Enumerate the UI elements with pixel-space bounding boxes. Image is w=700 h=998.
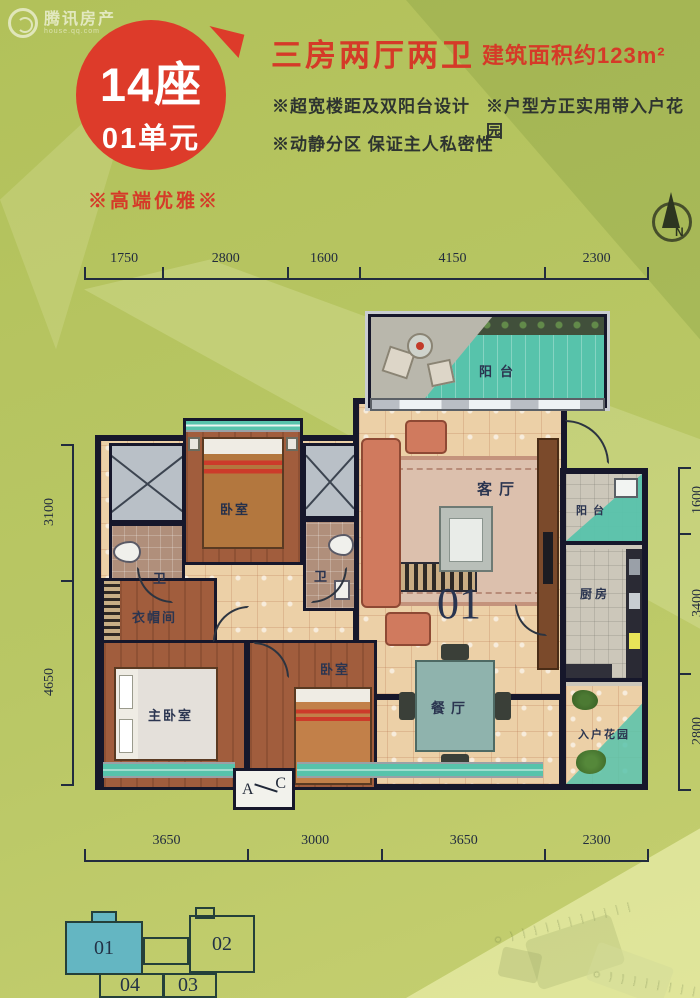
ghost-trees <box>491 900 639 946</box>
room-label-balcony-right: 阳台 <box>576 502 610 518</box>
bed-icon <box>202 437 284 549</box>
table-top <box>449 518 483 562</box>
room-label-master-bedroom: 主卧室 <box>148 705 193 724</box>
table-decor-icon <box>416 342 424 350</box>
tv-icon <box>543 532 553 584</box>
dimension-value: 2300 <box>545 251 648 267</box>
dimension-value: 1750 <box>85 251 163 267</box>
chair-icon <box>399 692 415 720</box>
dimension-value: 3000 <box>248 833 382 849</box>
section-mark-start: A <box>242 781 254 799</box>
window-band <box>370 398 605 411</box>
tagline: ※高端优雅※ <box>88 186 220 213</box>
room-bedroom-top: 卧室 <box>183 418 303 565</box>
plan-right-wing: 阳台 厨房 入户花园 <box>560 468 648 790</box>
toilet-icon <box>113 541 141 563</box>
window-band <box>297 762 543 778</box>
compass-icon: N <box>648 192 700 246</box>
room-kitchen: 厨房 <box>566 549 642 682</box>
window-band <box>186 421 300 432</box>
room-label-bedroom-top: 卧室 <box>220 499 250 518</box>
room-label-living: 客厅 <box>477 478 521 499</box>
dimension-segment: 3100 <box>46 445 74 581</box>
dimension-segment: 1600 <box>678 468 700 534</box>
dimension-value: 3400 <box>690 573 700 633</box>
appliance-icon <box>629 593 640 609</box>
nightstand-icon <box>188 437 200 451</box>
compass-arrow <box>662 192 680 228</box>
keyplan-unit1-label: 01 <box>67 937 141 960</box>
block-badge: 14座 01单元 <box>76 20 226 170</box>
room-label-kitchen: 厨房 <box>580 585 610 602</box>
sofa-icon <box>361 438 401 608</box>
compass-north-label: N <box>675 225 684 239</box>
plan-unit-number: 01 <box>437 578 481 629</box>
pillow-icon <box>119 675 133 709</box>
dimension-segment: 4150 <box>360 250 545 280</box>
area-text: 建筑面积约123m² <box>482 38 666 70</box>
dimension-segment: 1600 <box>288 250 359 280</box>
ghost-trees <box>590 969 700 998</box>
site-plan-ghost <box>470 890 700 998</box>
appliance-icon <box>629 559 640 575</box>
dimension-value: 1600 <box>288 251 359 267</box>
washer-icon <box>614 478 638 498</box>
toilet-icon <box>328 534 354 556</box>
dimension-segment: 2300 <box>545 832 648 862</box>
watermark-brand: 腾讯房产 <box>44 12 116 28</box>
dimension-segment: 2800 <box>678 674 700 790</box>
armchair-icon <box>405 420 447 454</box>
chair-icon <box>495 692 511 720</box>
room-label-entry-garden: 入户花园 <box>578 726 630 742</box>
watermark: 腾讯房产 house.qq.com <box>8 8 116 38</box>
dimension-column-right: 1600 3400 2800 <box>678 468 700 790</box>
block-number: 14座 <box>76 46 226 115</box>
armchair-icon <box>385 612 431 646</box>
dimension-value: 2300 <box>545 833 648 849</box>
dimension-value: 1600 <box>690 470 700 530</box>
room-entry-garden: 入户花园 <box>566 686 642 784</box>
dimension-segment: 3650 <box>382 832 545 862</box>
pillow-icon <box>119 719 133 753</box>
appliance-icon <box>629 633 640 649</box>
section-mark-line <box>254 783 277 792</box>
dimension-segment: 2800 <box>163 250 288 280</box>
room-label-dining: 餐厅 <box>431 698 471 718</box>
dimension-value: 4650 <box>42 652 58 712</box>
floor-plan: 阳台 阳台 厨房 <box>85 310 650 810</box>
keyplan-corridor <box>143 937 189 965</box>
dimension-value: 2800 <box>163 251 288 267</box>
room-label-balcony-top: 阳台 <box>479 361 521 380</box>
chair-icon <box>441 644 469 660</box>
floorplan-poster: 腾讯房产 house.qq.com 14座 01单元 三房两厅两卫 建筑面积约1… <box>0 0 700 998</box>
entry-door-arc-icon <box>565 420 609 464</box>
coffee-table-icon <box>439 506 493 572</box>
dimension-row-bottom: 3650 3000 3650 2300 <box>85 832 648 862</box>
keyplan-unit1: 01 <box>65 921 143 975</box>
ghost-building <box>497 946 542 984</box>
hatch-area-icon <box>109 443 185 523</box>
keyplan-unit3-label: 03 <box>131 974 245 997</box>
dimension-value: 3650 <box>85 833 248 849</box>
seat-cushion-icon <box>427 359 455 387</box>
watermark-text: 腾讯房产 house.qq.com <box>44 12 116 35</box>
nightstand-icon <box>286 437 298 451</box>
hatch-area-icon <box>303 443 357 519</box>
keyplan-unit2-label: 02 <box>191 933 253 956</box>
dimension-value: 3650 <box>382 833 545 849</box>
feature-item: ※动静分区 保证主人私密性 <box>272 130 494 155</box>
room-label-cloakroom: 衣帽间 <box>132 607 177 626</box>
room-label-bedroom-bottom: 卧室 <box>320 659 350 678</box>
dimension-segment: 3400 <box>678 534 700 674</box>
feature-item: ※超宽楼距及双阳台设计 <box>272 92 470 117</box>
dimension-column-left: 3100 4650 <box>46 445 74 785</box>
dimension-value: 4150 <box>360 251 545 267</box>
layout-title: 三房两厅两卫 <box>271 30 475 75</box>
dimension-segment: 3650 <box>85 832 248 862</box>
dimension-row-top: 1750 2800 1600 4150 2300 <box>85 250 648 280</box>
dimension-value: 2800 <box>690 701 700 761</box>
ghost-building <box>524 913 626 990</box>
dimension-value: 3100 <box>42 482 58 542</box>
keyplan-units-3-4: 04 03 <box>99 973 217 998</box>
room-balcony-top: 阳台 <box>368 314 607 408</box>
dimension-segment: 1750 <box>85 250 163 280</box>
section-mark-end: C <box>275 775 286 793</box>
dimension-segment: 3000 <box>248 832 382 862</box>
kitchen-counter-icon <box>566 664 612 678</box>
window-band <box>103 762 235 778</box>
ghost-building <box>586 942 675 998</box>
keyplan-unit2: 02 <box>189 915 255 973</box>
watermark-logo-icon <box>8 8 38 38</box>
keyplan: 01 02 04 03 <box>55 903 270 998</box>
dimension-segment: 4650 <box>46 581 74 785</box>
section-mark: A C <box>233 768 295 810</box>
unit-number-label: 01单元 <box>76 115 226 157</box>
watermark-site: house.qq.com <box>44 28 116 35</box>
dimension-segment: 2300 <box>545 250 648 280</box>
feature-item: ※户型方正实用带入户花园 <box>486 92 700 142</box>
room-balcony-right: 阳台 <box>566 474 642 545</box>
plant-icon <box>572 690 598 710</box>
